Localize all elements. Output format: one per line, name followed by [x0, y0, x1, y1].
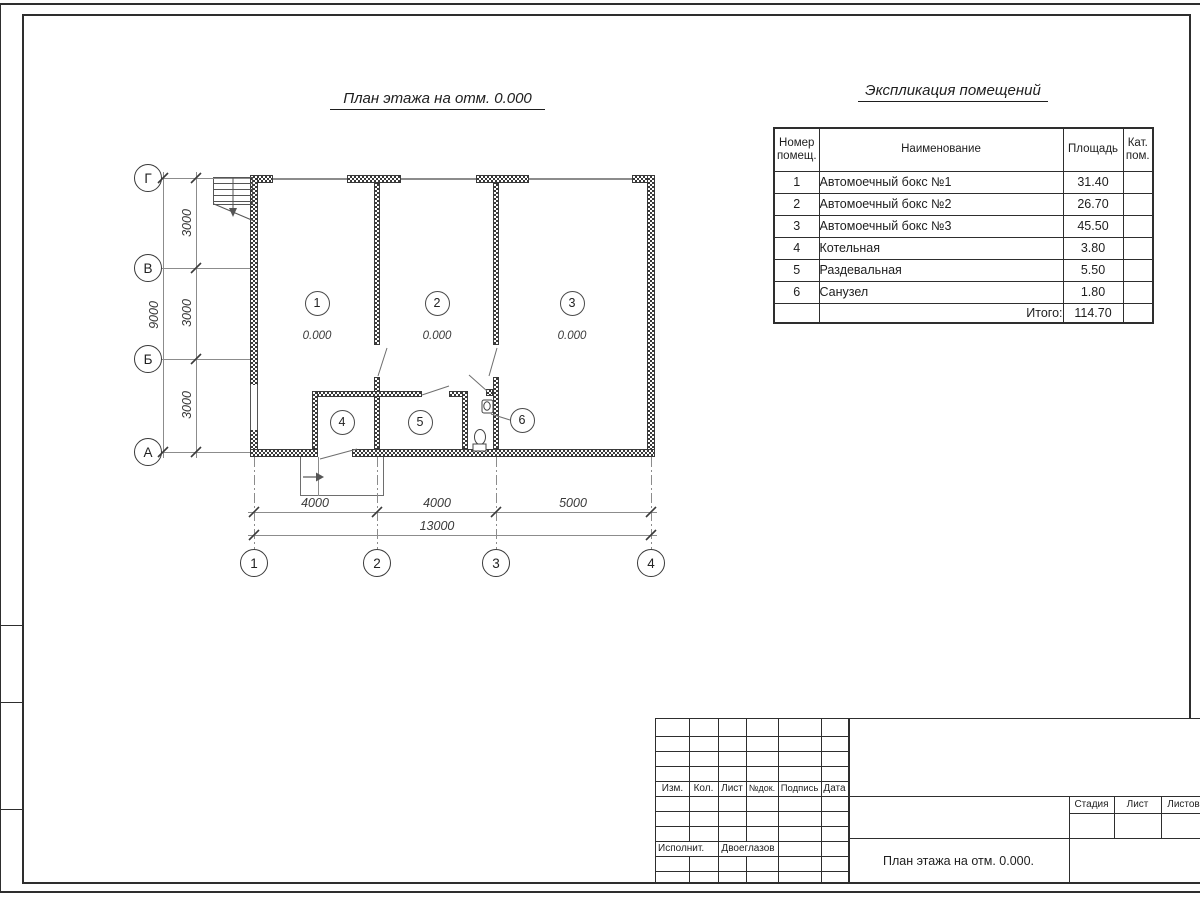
inner-frame-right [1189, 14, 1191, 718]
cell-num: 5 [774, 259, 819, 281]
axis-label: 3 [492, 556, 500, 571]
partition-rooms-top [312, 391, 422, 397]
cell-area: 26.70 [1063, 193, 1123, 215]
table-row: 3 Автомоечный бокс №3 45.50 [774, 215, 1153, 237]
table-row: 6 Санузел 1.80 [774, 281, 1153, 303]
axis-bubble-b: Б [134, 345, 162, 373]
toilet-icon [473, 430, 486, 452]
cell-cat [1123, 259, 1153, 281]
room-number: 5 [417, 415, 424, 429]
stamp-line [746, 856, 747, 884]
cell-name: Раздевальная [819, 259, 1063, 281]
room-bubble-1: 1 [305, 291, 330, 316]
entrance-porch [300, 457, 384, 496]
room-number: 3 [569, 296, 576, 310]
stamp-line [656, 841, 848, 842]
gate-opening-line [273, 178, 347, 180]
dim-13000: 13000 [407, 519, 467, 533]
cell-area: 1.80 [1063, 281, 1123, 303]
plan-title: План этажа на отм. 0.000 [330, 90, 545, 110]
cell-name: Автомоечный бокс №1 [819, 171, 1063, 193]
elevation-mark: 0.000 [542, 330, 602, 342]
partition-2-3 [493, 183, 499, 345]
wall-right [647, 175, 655, 457]
cell-cat [1123, 171, 1153, 193]
table-row: 4 Котельная 3.80 [774, 237, 1153, 259]
partition-4-left [312, 391, 318, 449]
wall-segment [347, 175, 401, 183]
col-header-cat: Кат. пом. [1123, 128, 1153, 171]
axis-line-b [162, 359, 250, 360]
elevation-mark: 0.000 [287, 330, 347, 342]
stamp-line [656, 781, 848, 782]
room-number: 2 [434, 296, 441, 310]
title-block: Изм. Кол. Лист №док. Подпись Дата Исполн… [655, 718, 1200, 883]
cell-num [774, 303, 819, 323]
drawing-sheet: План этажа на отм. 0.000 3000 3000 3000 … [0, 0, 1200, 900]
axis-bubble-a: А [134, 438, 162, 466]
cell-name: Автомоечный бокс №3 [819, 215, 1063, 237]
axis-bubble-3: 3 [482, 549, 510, 577]
stairs-direction-arrow [229, 208, 237, 217]
room-bubble-5: 5 [408, 410, 433, 435]
door-swing-lines [320, 348, 497, 459]
table-header-row: Номер помещ. Наименование Площадь Кат. п… [774, 128, 1153, 171]
wall-segment [476, 175, 529, 183]
stamp-doc-title: План этажа на отм. 0.000. [848, 854, 1069, 868]
cell-cat [1123, 303, 1153, 323]
dim-3000: 3000 [180, 283, 194, 343]
stamp-line [656, 736, 848, 737]
axis-label: В [143, 261, 152, 276]
axis-label: Б [144, 352, 153, 367]
explication-title: Экспликация помещений [858, 82, 1048, 102]
axis-label: 2 [373, 556, 381, 571]
stamp-line [1069, 813, 1200, 814]
binding-cell-line [0, 625, 23, 626]
axis-label: А [143, 445, 152, 460]
porch-step-line [318, 457, 319, 496]
inner-frame-top [22, 14, 1190, 16]
axis-bubble-1: 1 [240, 549, 268, 577]
wall-segment [352, 449, 655, 457]
cell-name: Котельная [819, 237, 1063, 259]
axis-line-g [162, 178, 250, 179]
cell-num: 1 [774, 171, 819, 193]
total-value: 114.70 [1063, 303, 1123, 323]
stamp-line [848, 838, 1200, 839]
partition-6-right [493, 377, 499, 449]
partition-6-left [462, 391, 468, 449]
cell-area: 3.80 [1063, 237, 1123, 259]
stamp-line [821, 719, 822, 884]
cell-area: 45.50 [1063, 215, 1123, 237]
dim-4000: 4000 [407, 496, 467, 510]
explication-table: Номер помещ. Наименование Площадь Кат. п… [773, 127, 1154, 324]
table-row: 2 Автомоечный бокс №2 26.70 [774, 193, 1153, 215]
axis-label: 4 [647, 556, 655, 571]
axis-bubble-v: В [134, 254, 162, 282]
stamp-line [656, 826, 848, 827]
room-number: 6 [519, 413, 526, 427]
dim-5000: 5000 [543, 496, 603, 510]
axis-label: 1 [250, 556, 258, 571]
binding-cell-line [0, 702, 23, 703]
stamp-executor-label: Исполнит. [658, 843, 718, 854]
dim-4000: 4000 [285, 496, 345, 510]
stamp-line [656, 856, 848, 857]
room-bubble-6: 6 [510, 408, 535, 433]
stamp-line [689, 856, 690, 884]
stamp-line [656, 796, 1200, 797]
gate-opening-line [401, 178, 476, 180]
elevation-mark: 0.000 [407, 330, 467, 342]
gate-opening-line [529, 178, 632, 180]
cell-num: 6 [774, 281, 819, 303]
dimension-ticks [158, 173, 656, 540]
room-number: 4 [339, 415, 346, 429]
col-header-area: Площадь [1063, 128, 1123, 171]
cell-num: 3 [774, 215, 819, 237]
binding-cell-line [0, 809, 23, 810]
cell-num: 2 [774, 193, 819, 215]
cell-area: 31.40 [1063, 171, 1123, 193]
cell-num: 4 [774, 237, 819, 259]
axis-label: Г [144, 171, 151, 186]
stamp-executor-name: Двоеглазов [718, 843, 778, 854]
stamp-col-podpis: Подпись [778, 783, 821, 794]
stamp-line [656, 811, 848, 812]
cell-cat [1123, 215, 1153, 237]
door-jamb [486, 389, 493, 396]
cell-cat [1123, 237, 1153, 259]
stamp-line [689, 719, 690, 841]
table-total-row: Итого: 114.70 [774, 303, 1153, 323]
col-header-num: Номер помещ. [774, 128, 819, 171]
col-header-name: Наименование [819, 128, 1063, 171]
stamp-line [656, 871, 848, 872]
cell-area: 5.50 [1063, 259, 1123, 281]
axis-bubble-4: 4 [637, 549, 665, 577]
room-bubble-3: 3 [560, 291, 585, 316]
stamp-line [656, 766, 848, 767]
room-number: 1 [314, 296, 321, 310]
partition-4-5 [374, 377, 380, 449]
dimension-line [196, 172, 197, 458]
dimension-line [248, 535, 657, 536]
stamp-sheets-label: Листов [1161, 799, 1200, 810]
dim-9000: 9000 [147, 285, 161, 345]
total-label: Итого: [819, 303, 1063, 323]
cell-cat [1123, 193, 1153, 215]
wall-segment [250, 449, 318, 457]
window [250, 385, 258, 430]
outer-border-left [0, 3, 1, 893]
dimension-line [248, 512, 657, 513]
outer-border-top [0, 3, 1200, 5]
stamp-line [718, 719, 719, 884]
inner-frame-left [22, 14, 24, 883]
cell-name: Санузел [819, 281, 1063, 303]
axis-bubble-g: Г [134, 164, 162, 192]
stamp-line [656, 751, 848, 752]
cell-name: Автомоечный бокс №2 [819, 193, 1063, 215]
sink-icon [482, 400, 493, 413]
dimension-line [163, 172, 164, 458]
cell-cat [1123, 281, 1153, 303]
partition-1-2 [374, 183, 380, 345]
stamp-col-kol: Кол. [689, 783, 718, 794]
exterior-stairs [213, 177, 253, 205]
axis-line-v [162, 268, 250, 269]
room-bubble-2: 2 [425, 291, 450, 316]
stamp-col-data: Дата [821, 783, 848, 794]
stamp-stage-label: Стадия [1069, 799, 1114, 810]
outer-border-bottom [0, 891, 1200, 893]
axis-bubble-2: 2 [363, 549, 391, 577]
stamp-col-ndok: №док. [746, 783, 778, 793]
room-bubble-4: 4 [330, 410, 355, 435]
stamp-col-list: Лист [718, 783, 746, 794]
axis-line-a [162, 452, 250, 453]
stamp-sheet-label: Лист [1114, 799, 1161, 810]
dim-3000: 3000 [180, 193, 194, 253]
table-row: 1 Автомоечный бокс №1 31.40 [774, 171, 1153, 193]
stamp-line [778, 719, 779, 884]
dim-3000: 3000 [180, 375, 194, 435]
stamp-col-izm: Изм. [656, 783, 689, 794]
stamp-line [746, 719, 747, 841]
table-row: 5 Раздевальная 5.50 [774, 259, 1153, 281]
